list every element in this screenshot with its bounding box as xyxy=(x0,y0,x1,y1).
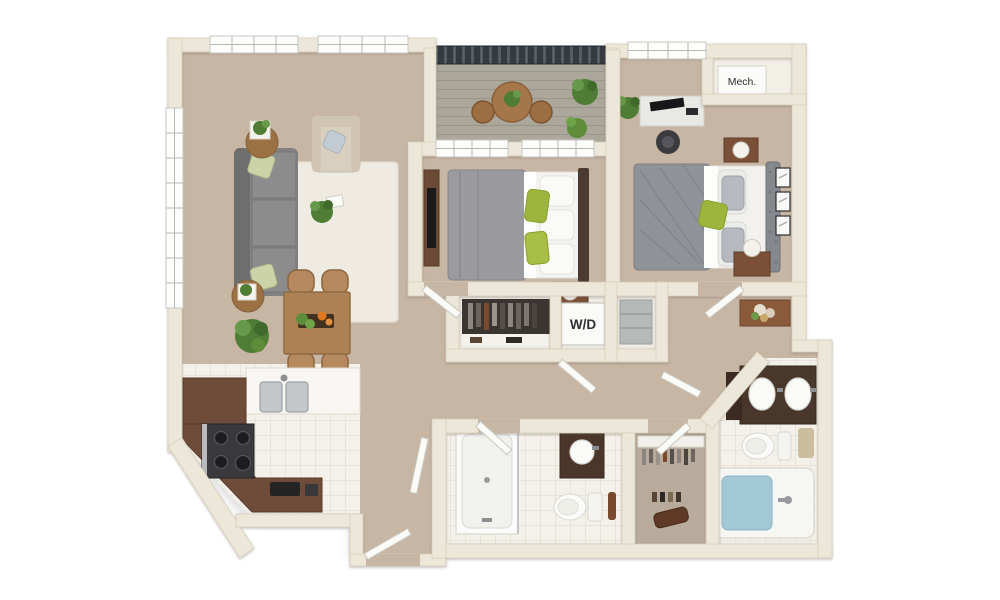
tv xyxy=(427,188,436,248)
wall-frames xyxy=(776,168,790,235)
wall-linen-right xyxy=(656,282,668,362)
range-stove xyxy=(202,424,254,478)
plant xyxy=(262,120,270,128)
living-side-window xyxy=(166,108,183,308)
sink-basin xyxy=(570,440,594,464)
laundry-closet: W/D xyxy=(462,299,605,346)
accent-pillow-green xyxy=(698,200,729,231)
toilet-seat xyxy=(746,438,766,454)
bedroom1-window-1 xyxy=(436,140,508,157)
mech-closet: Mech. xyxy=(718,66,766,96)
burner xyxy=(215,456,228,469)
living-window-1 xyxy=(210,36,298,53)
burner xyxy=(237,432,250,445)
shelf-item xyxy=(470,337,482,343)
armchair xyxy=(312,116,360,172)
wall-bath1-closet xyxy=(622,433,635,544)
bedroom2-window xyxy=(628,42,706,59)
dining-chair xyxy=(322,270,348,294)
vanity-sink xyxy=(560,430,604,478)
wall-laundry-div1 xyxy=(550,296,561,349)
balcony-railing xyxy=(436,46,606,64)
kitchen-faucet xyxy=(281,375,288,382)
centerpiece-flower xyxy=(318,312,327,321)
wall-laundry-div2 xyxy=(605,282,617,362)
balcony-chair xyxy=(530,101,552,123)
counter-appliance xyxy=(270,482,300,496)
wall-mech-bottom xyxy=(702,94,806,105)
kitchen-sink-left xyxy=(260,382,282,412)
headboard xyxy=(578,168,589,282)
shelf-item xyxy=(506,337,522,343)
washer-dryer-label: W/D xyxy=(570,317,596,332)
floor-plan-canvas: W/D Mech. xyxy=(0,0,1000,600)
burner xyxy=(236,456,251,471)
side-table-bottom xyxy=(232,280,264,312)
desk-with-monitor xyxy=(640,96,704,126)
balcony-potted-plant xyxy=(572,79,598,105)
faucet xyxy=(592,446,599,450)
wall-bath1-left xyxy=(432,419,446,558)
centerpiece-flower xyxy=(326,319,333,326)
wall-living-divider xyxy=(408,142,422,296)
wall-kitchen-bottom xyxy=(236,514,362,527)
bath-mat xyxy=(798,428,814,458)
sink-basin xyxy=(749,378,775,410)
wall-right-bottom xyxy=(818,340,832,558)
floor-plan-svg: W/D Mech. xyxy=(0,0,1000,600)
linen-unit xyxy=(620,300,652,344)
sofa xyxy=(234,148,298,296)
accent-pillow-green xyxy=(524,189,550,224)
toilet-tank xyxy=(778,432,791,460)
accent-pillow-green xyxy=(524,231,549,265)
tub-faucet-spout xyxy=(778,498,788,502)
mech-label: Mech. xyxy=(728,76,757,88)
tub-water xyxy=(722,476,772,530)
faucet xyxy=(777,388,783,392)
counter-appliance xyxy=(305,484,318,496)
plant xyxy=(323,200,333,210)
toilet xyxy=(742,432,791,460)
armchair-arm xyxy=(351,116,360,172)
bedroom1-window-2 xyxy=(522,140,594,157)
plant xyxy=(240,284,252,296)
wall-bedroom-divider xyxy=(606,50,620,296)
washer-dryer-unit: W/D xyxy=(561,303,605,345)
flower-bouquet xyxy=(760,314,768,322)
table-lamp xyxy=(733,142,749,158)
balcony-table-plant xyxy=(513,90,521,98)
bed-1 xyxy=(448,168,589,282)
plant xyxy=(310,201,320,211)
wall-bath-bottom xyxy=(432,544,832,558)
linen-closet xyxy=(620,300,652,344)
faucet xyxy=(810,388,816,392)
shower-drain xyxy=(484,477,490,483)
floor-plant xyxy=(235,319,269,353)
table-lamp xyxy=(744,240,761,257)
toilet-seat xyxy=(558,499,578,515)
wall-balcony-left xyxy=(424,48,436,154)
hallway xyxy=(740,300,790,326)
wall-closet-bath2 xyxy=(706,419,719,544)
hanging-clothes xyxy=(468,303,537,330)
kitchen-sink-right xyxy=(286,382,308,412)
sofa-cushion xyxy=(252,200,296,246)
wall-laundry-bottom xyxy=(446,349,668,362)
balcony-chair xyxy=(472,101,494,123)
toilet xyxy=(554,493,602,521)
bathtub xyxy=(714,468,814,538)
sink-basin xyxy=(785,378,811,410)
flower-greens xyxy=(751,312,759,320)
shower-stall xyxy=(456,428,518,534)
wall-right-top xyxy=(792,44,806,352)
upper-cabinet-block xyxy=(183,378,246,424)
towel-holder xyxy=(608,492,616,520)
centerpiece-greens xyxy=(305,319,315,329)
armchair-arm xyxy=(312,116,321,172)
shower-fixture xyxy=(482,518,492,522)
keyboard xyxy=(686,108,698,115)
living-window-2 xyxy=(318,36,408,53)
burner xyxy=(215,432,228,445)
office-chair-seat xyxy=(662,136,674,148)
dining-chair xyxy=(288,270,314,294)
toilet-tank xyxy=(588,493,602,521)
